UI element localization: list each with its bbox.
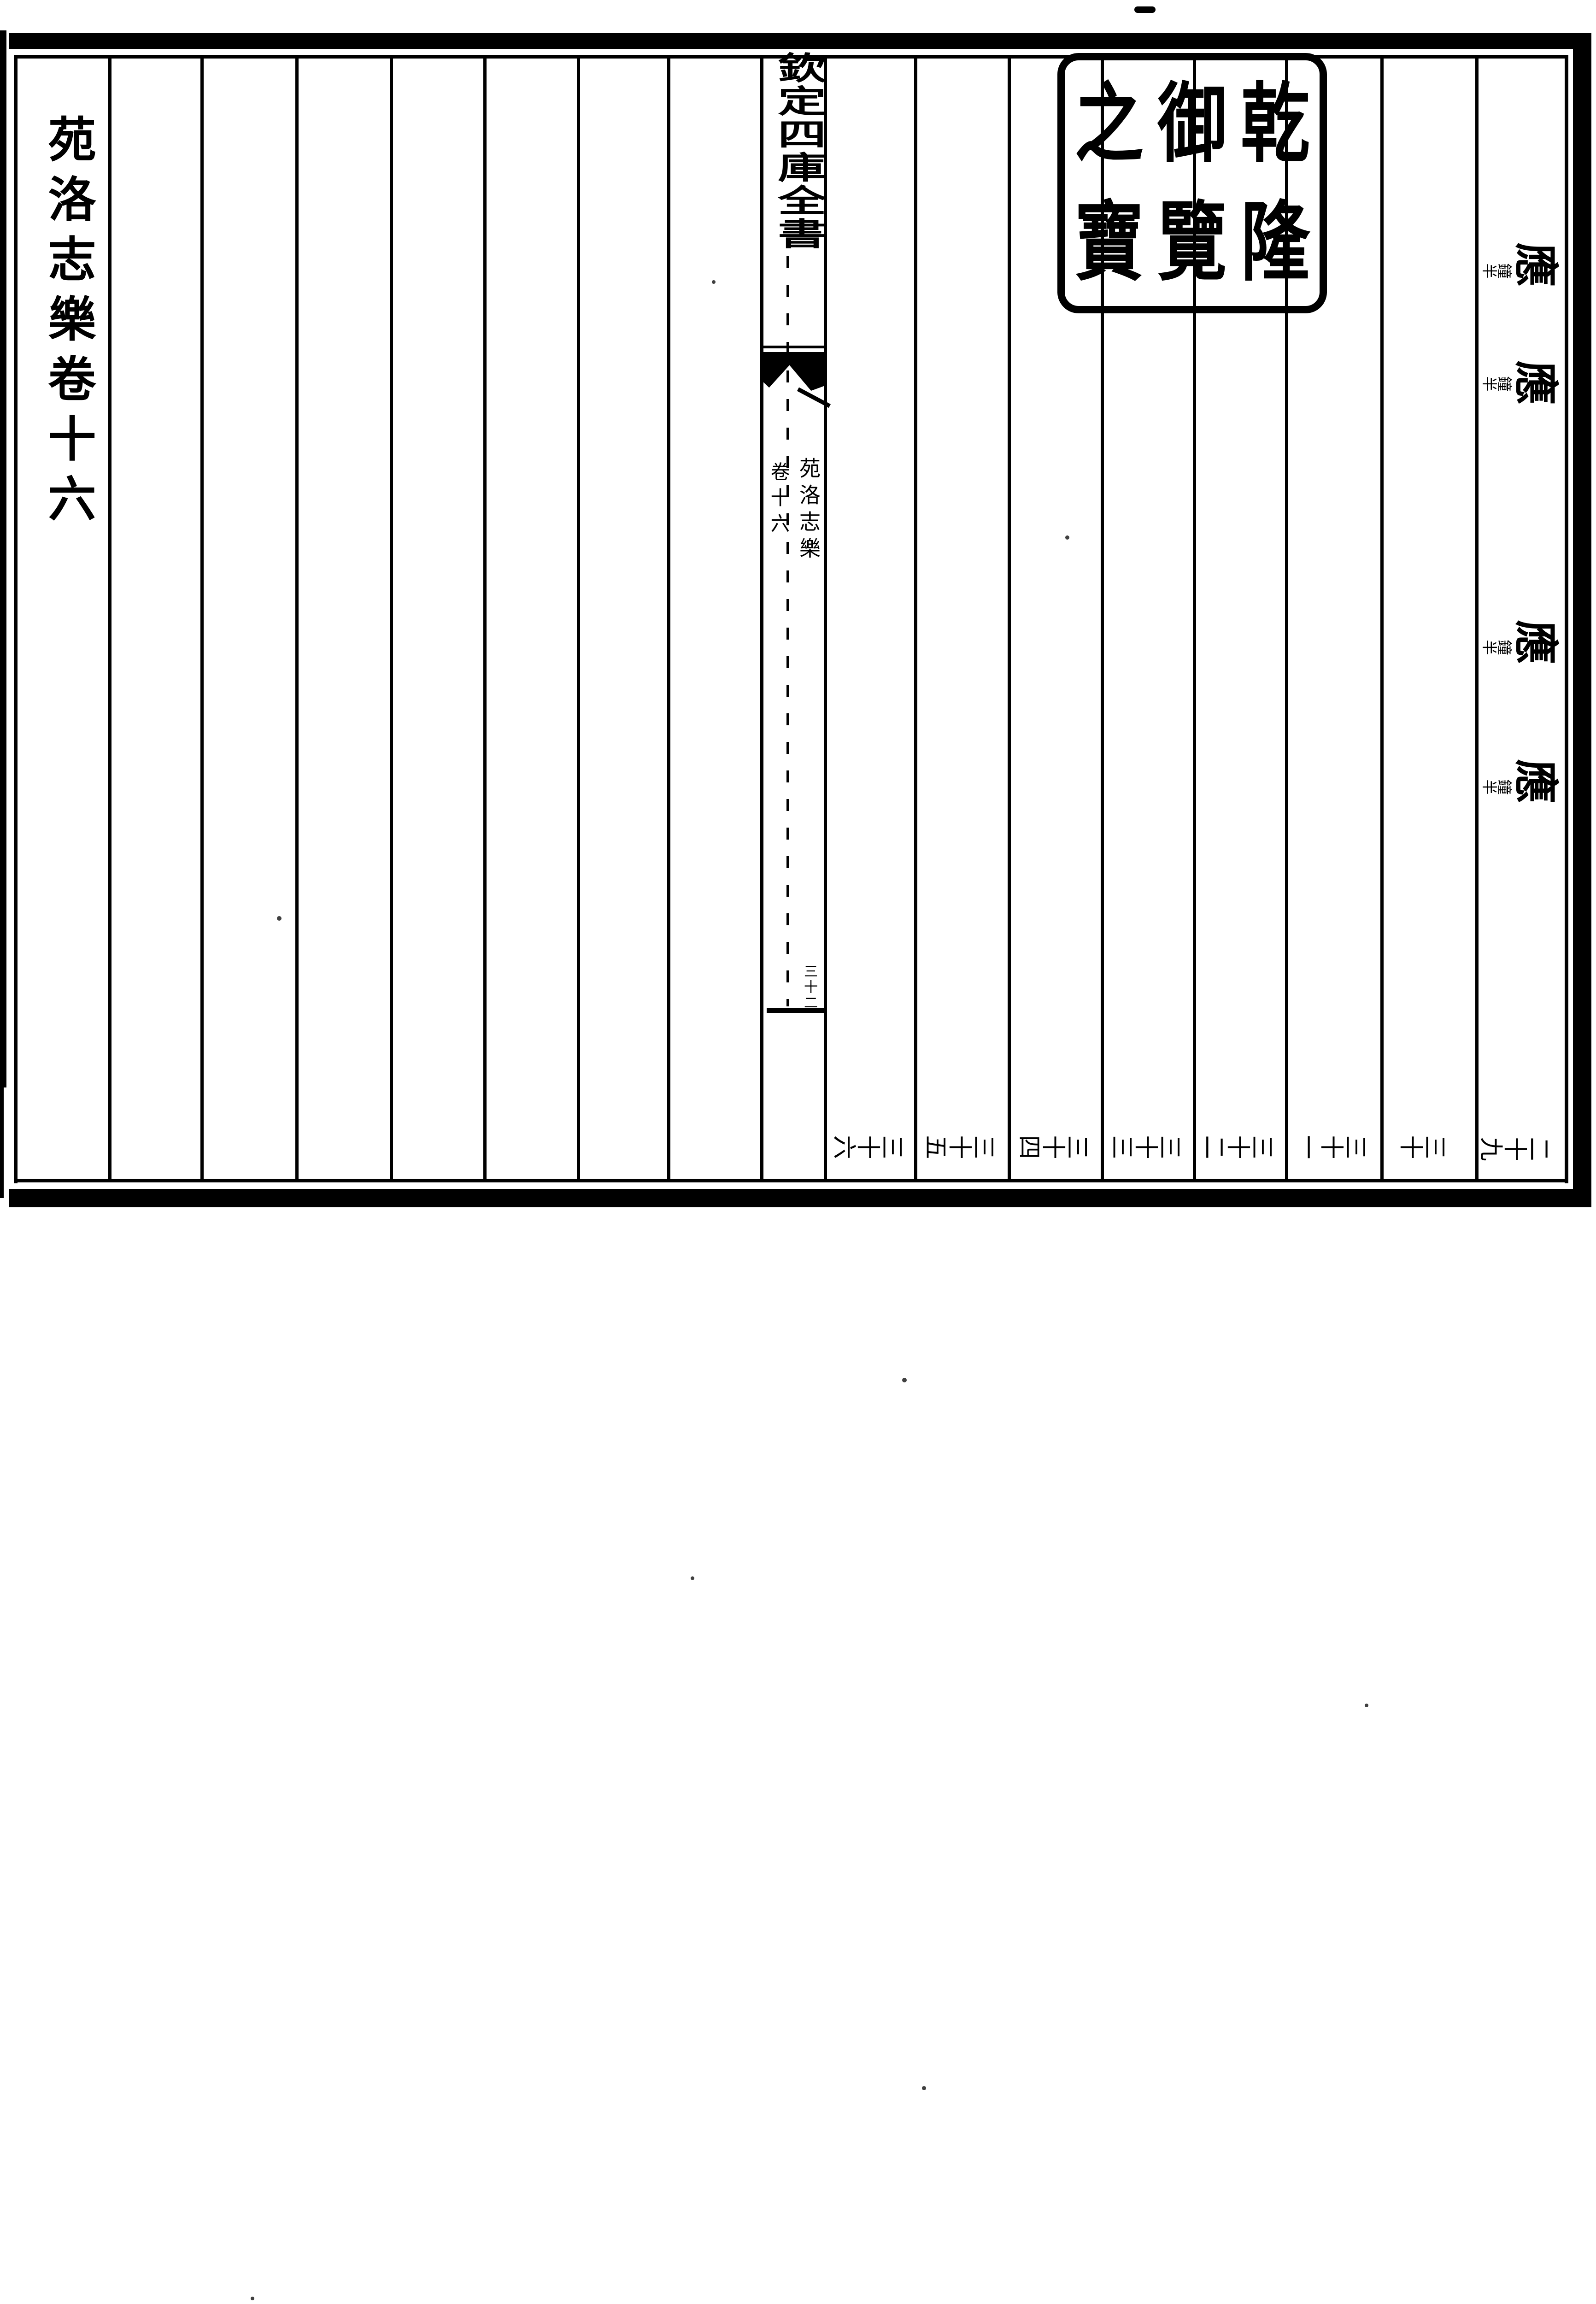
speck	[1065, 535, 1069, 540]
pitch-char: 應	[1513, 614, 1561, 662]
column-line	[390, 59, 393, 1179]
frame-right-thick	[1573, 33, 1591, 1207]
speck	[251, 2297, 254, 2300]
column-line	[1008, 59, 1011, 1179]
seal-char: 御	[1157, 81, 1226, 168]
fishtail-top-rule	[760, 346, 824, 348]
pitch-annotation: 鐘半	[1478, 260, 1517, 279]
column-line	[483, 59, 487, 1179]
scan-edge-strip	[0, 1087, 4, 1198]
banxin-header: 欽定四庫全書	[763, 52, 833, 251]
banxin-book-title: 苑洛志樂	[793, 457, 824, 564]
column-line	[1475, 59, 1479, 1179]
scan-edge-mark	[1134, 6, 1156, 13]
column-number: 三十	[1383, 1132, 1464, 1158]
banxin-folio-number: 三十二	[799, 964, 819, 1011]
column-line	[295, 59, 299, 1179]
frame-top-thick	[9, 33, 1590, 49]
column-number: 三十五	[920, 1132, 1001, 1158]
banxin-fold-dashes	[786, 256, 789, 1006]
speck	[902, 1378, 907, 1382]
column-line	[914, 59, 917, 1179]
banxin-chapter: 卷十六	[765, 462, 793, 539]
fishtail-mark	[760, 352, 824, 391]
seal-char: 隆	[1241, 199, 1310, 286]
scan-edge-strip	[0, 30, 6, 1087]
column-line	[108, 59, 111, 1179]
frame-bottom-thick	[9, 1189, 1590, 1207]
speck	[277, 916, 282, 921]
seal-column-middle: 御 覽	[1150, 65, 1233, 301]
pitch-char: 應	[1513, 355, 1561, 403]
pitch-char: 應	[1513, 237, 1561, 285]
pitch-annotation: 鐘半	[1478, 776, 1517, 795]
speck	[922, 2086, 926, 2090]
imperial-seal: 乾 隆 御 覽 之 寶	[1057, 53, 1327, 313]
frame-bottom-thin	[16, 1179, 1567, 1182]
folio-divider-rule	[767, 1008, 825, 1013]
column-number: 三十四	[1014, 1132, 1095, 1158]
scanned-page: 苑洛志樂卷十六 欽定四庫全書 苑洛志樂 卷十六 三十二 乾 隆 御 覽 之 寶 …	[0, 0, 1596, 2304]
pitch-char: 應	[1513, 753, 1561, 801]
seal-char: 寶	[1074, 199, 1144, 286]
column-line	[200, 59, 204, 1179]
volume-title: 苑洛志樂卷十六	[33, 114, 103, 534]
frame-left-thin	[14, 55, 18, 1183]
speck	[1365, 1704, 1368, 1707]
seal-char: 乾	[1241, 81, 1310, 168]
seal-column-right: 乾 隆	[1234, 65, 1317, 301]
seal-char: 之	[1074, 81, 1144, 168]
column-number: 三十二	[1198, 1132, 1279, 1158]
pitch-annotation: 鐘半	[1478, 373, 1517, 392]
seal-char: 覽	[1157, 199, 1226, 286]
column-number: 二十九	[1475, 1134, 1556, 1159]
column-number: 三十六	[828, 1132, 909, 1158]
frame-right-thin	[1565, 55, 1568, 1183]
column-number: 三十三	[1106, 1132, 1187, 1158]
seal-column-left: 之 寶	[1068, 65, 1150, 301]
speck	[691, 1576, 694, 1580]
speck	[712, 280, 716, 284]
column-line	[667, 59, 670, 1179]
column-number: 三十一	[1292, 1132, 1373, 1158]
pitch-annotation: 鐘半	[1478, 637, 1517, 655]
column-line	[577, 59, 580, 1179]
column-line	[1380, 59, 1384, 1179]
